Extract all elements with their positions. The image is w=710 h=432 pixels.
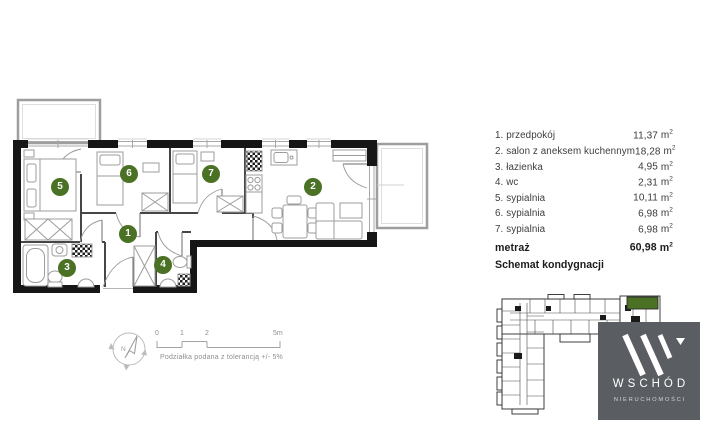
area-value: 60,98 (630, 242, 657, 254)
area-unit: m2 (661, 162, 673, 173)
legend-row: 2. salon z aneksem kuchennym 18,28 m2 (495, 145, 673, 161)
balcony-top-left (18, 100, 100, 143)
total-area-row: metraż 60,98 m2 (495, 241, 673, 258)
area-unit: m2 (661, 130, 673, 141)
room-marker-3: 3 (58, 259, 76, 277)
room-area: 6,98 m2 (638, 207, 673, 219)
room-label: 6. sypialnia (495, 208, 545, 219)
room-label: 4. wc (495, 177, 518, 188)
area-value: 2,31 (638, 177, 658, 188)
area-unit: m2 (660, 242, 673, 254)
compass-icon (109, 333, 148, 371)
room-area: 11,37 m2 (633, 129, 673, 141)
floorplan-page: 1 2 3 4 5 6 7 1. przedpokój 11,37 m2 2. … (0, 0, 710, 432)
window-kitchen (262, 139, 289, 148)
area-unit: m2 (661, 193, 673, 204)
room-legend: 1. przedpokój 11,37 m2 2. salon z anekse… (495, 129, 673, 271)
room-marker-4: 4 (154, 256, 172, 274)
highlighted-unit (627, 297, 658, 309)
room-marker-1: 1 (119, 225, 137, 243)
area-unit: m2 (663, 146, 675, 157)
area-value: 6,98 (638, 224, 658, 235)
room-area: 10,11 m2 (633, 191, 673, 203)
balcony-right (377, 144, 427, 228)
room-area: 18,28 m2 (635, 145, 676, 157)
room-marker-7: 7 (202, 165, 220, 183)
area-unit: m2 (661, 177, 673, 188)
balcony-door-frame (367, 166, 377, 232)
compass-north-label: N (121, 346, 126, 353)
legend-row: 4. wc 2,31 m2 (495, 176, 673, 192)
logo-subtitle: NIERUCHOMOŚCI (598, 397, 700, 403)
room5-furniture (24, 150, 76, 240)
legend-row: 6. sypialnia 6,98 m2 (495, 207, 673, 223)
scale-tick-5m: 5m (273, 330, 283, 337)
room-area: 2,31 m2 (638, 176, 673, 188)
legend-row: 5. sypialnia 10,11 m2 (495, 191, 673, 207)
room-label: 5. sypialnia (495, 193, 545, 204)
scale-tick-2: 2 (205, 330, 209, 337)
area-value: 10,11 (633, 193, 658, 204)
room-area: 6,98 m2 (638, 223, 673, 235)
total-label: metraż (495, 242, 530, 254)
room-label: 2. salon z aneksem kuchennym (495, 146, 635, 157)
logo-name: WSCHÓD (598, 378, 700, 390)
area-unit: m2 (661, 208, 673, 219)
room-area: 4,95 m2 (638, 160, 673, 172)
area-value: 11,37 (633, 130, 658, 141)
room-marker-6: 6 (120, 165, 138, 183)
room-label: 1. przedpokój (495, 130, 555, 141)
window-room7 (193, 139, 221, 148)
room-label: 7. sypialnia (495, 224, 545, 235)
area-value: 6,98 (638, 208, 658, 219)
logo-mark-icon (598, 322, 700, 420)
scale-tick-0: 0 (155, 330, 159, 337)
legend-row: 3. łazienka 4,95 m2 (495, 160, 673, 176)
total-area: 60,98 m2 (630, 241, 673, 254)
room-marker-5: 5 (51, 178, 69, 196)
room-label: 3. łazienka (495, 162, 543, 173)
area-unit: m2 (661, 224, 673, 235)
scale-tick-1: 1 (180, 330, 184, 337)
legend-row: 7. sypialnia 6,98 m2 (495, 223, 673, 239)
agency-logo: WSCHÓD NIERUCHOMOŚCI (598, 322, 700, 420)
scale-bar (157, 341, 280, 348)
area-value: 4,95 (638, 162, 658, 173)
window-salon (307, 139, 331, 148)
scale-tolerance-note: Podziałka podana z tolerancją +/- 5% (160, 354, 283, 361)
window-room6 (118, 139, 147, 148)
room-marker-2: 2 (304, 178, 322, 196)
area-value: 18,28 (635, 146, 661, 157)
schematic-heading: Schemat kondygnacji (495, 259, 673, 271)
legend-row: 1. przedpokój 11,37 m2 (495, 129, 673, 145)
